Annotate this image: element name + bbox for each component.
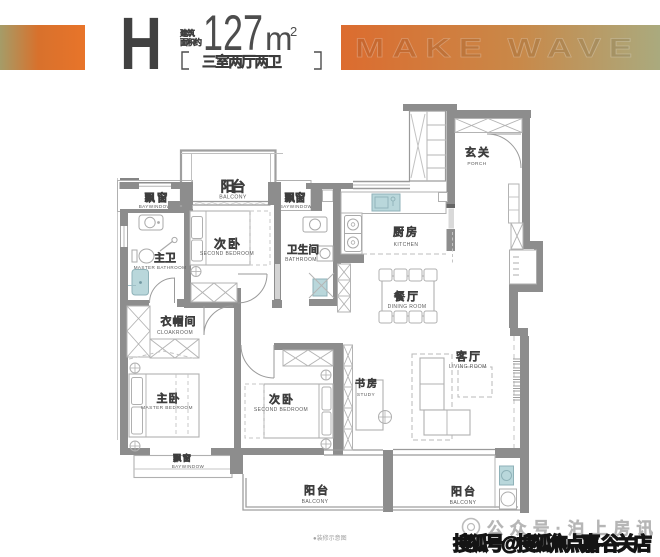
svg-text:BALCONY: BALCONY [302,499,329,505]
svg-text:主卧: 主卧 [157,391,180,405]
svg-text:BAYWINDOW: BAYWINDOW [172,464,205,469]
svg-text:阳台: 阳台 [451,484,475,498]
svg-text:卫生间: 卫生间 [287,243,319,256]
svg-text:CLOAKROOM: CLOAKROOM [157,330,193,336]
svg-text:衣帽间: 衣帽间 [161,314,196,328]
svg-text:●装修示意图: ●装修示意图 [313,534,347,542]
svg-text:次卧: 次卧 [214,236,240,251]
svg-text:DINING ROOM: DINING ROOM [388,304,427,310]
svg-text:MAKE WAVE: MAKE WAVE [355,33,640,63]
svg-text:MASTER BATHROOM: MASTER BATHROOM [134,265,187,270]
svg-text:SECOND BEDROOM: SECOND BEDROOM [254,407,308,413]
svg-text:PORCH: PORCH [467,161,486,167]
svg-text:MASTER BEDROOM: MASTER BEDROOM [141,405,193,411]
svg-text:主卫: 主卫 [154,251,176,265]
svg-text:BAYWINDOW: BAYWINDOW [139,204,172,209]
svg-text:SECOND BEDROOM: SECOND BEDROOM [200,251,254,257]
svg-text:玄关: 玄关 [465,145,489,159]
svg-text:三室两厅两卫: 三室两厅两卫 [202,53,283,71]
svg-text:KITCHEN: KITCHEN [394,242,419,248]
svg-text:搜狐号@搜狐焦点嘉-谷关店: 搜狐号@搜狐焦点嘉-谷关店 [453,532,652,555]
svg-text:客厅: 客厅 [455,349,480,363]
svg-text:建筑: 建筑 [179,28,195,38]
svg-text:飘窗: 飘窗 [285,191,307,204]
svg-text:BATHROOM: BATHROOM [285,257,317,263]
svg-text:2: 2 [290,24,297,39]
svg-text:阳台: 阳台 [221,179,246,195]
svg-text:H: H [120,2,162,85]
svg-text:m: m [265,20,293,57]
svg-text:BAYWINDOW: BAYWINDOW [280,204,313,209]
svg-text:BALCONY: BALCONY [219,195,247,201]
svg-text:BALCONY: BALCONY [450,500,477,506]
svg-text:厨房: 厨房 [393,225,417,239]
svg-text:飘窗: 飘窗 [173,453,191,463]
svg-text:阳台: 阳台 [304,483,328,497]
svg-text:面积约: 面积约 [180,37,202,47]
svg-text:STUDY: STUDY [357,392,376,398]
svg-text:LIVING ROOM: LIVING ROOM [449,364,487,370]
svg-text:127: 127 [203,5,263,61]
svg-text:飘窗: 飘窗 [145,191,169,204]
